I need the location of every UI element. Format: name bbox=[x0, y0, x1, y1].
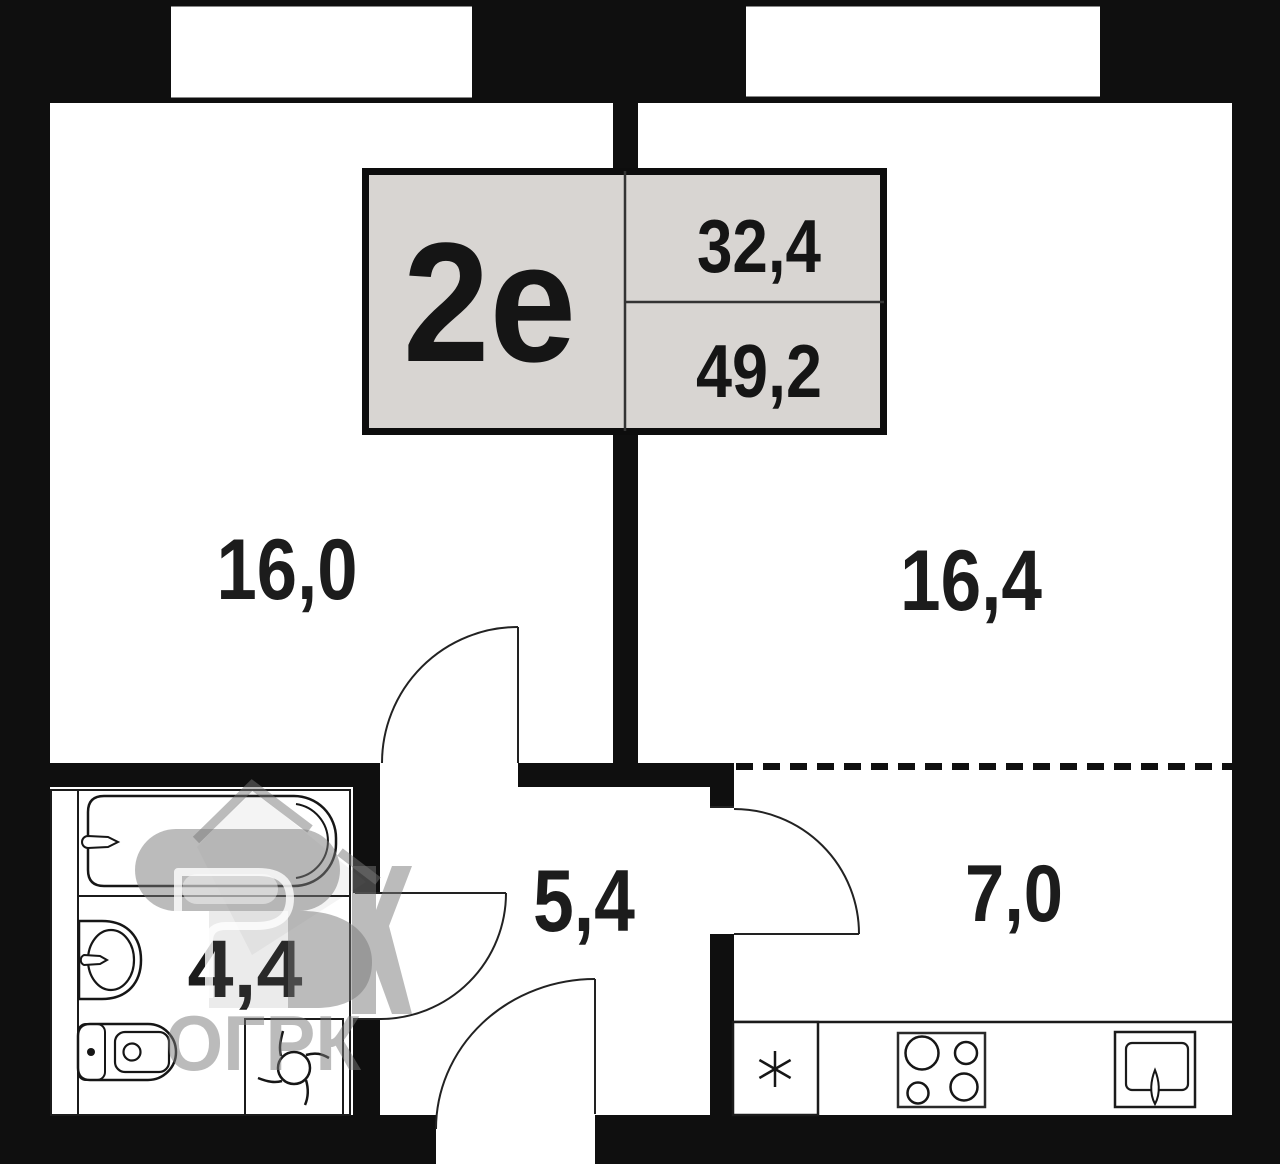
svg-text:5,4: 5,4 bbox=[533, 851, 635, 950]
svg-text:49,2: 49,2 bbox=[696, 329, 822, 413]
svg-text:ОГРК: ОГРК bbox=[165, 999, 361, 1087]
svg-text:32,4: 32,4 bbox=[697, 204, 821, 288]
svg-text:16,0: 16,0 bbox=[217, 522, 358, 618]
svg-text:16,4: 16,4 bbox=[900, 533, 1042, 629]
svg-text:2е: 2е bbox=[403, 208, 576, 398]
svg-text:7,0: 7,0 bbox=[965, 849, 1063, 939]
